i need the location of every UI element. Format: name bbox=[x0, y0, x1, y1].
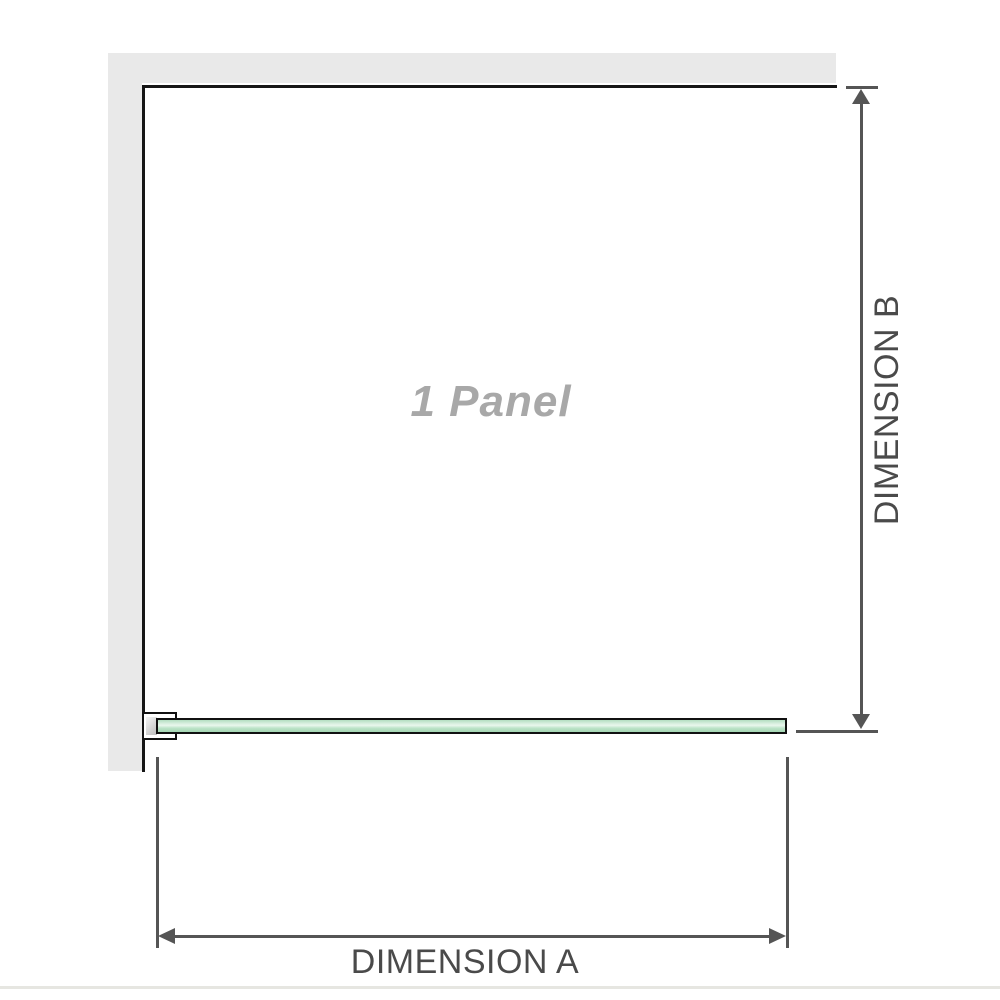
arrow-left-icon bbox=[158, 928, 175, 944]
glass-panel-bar bbox=[156, 718, 787, 734]
dimension-b-tick-bottom bbox=[796, 730, 878, 733]
panel-area: 1 Panel bbox=[145, 88, 837, 716]
dimension-b-line bbox=[860, 95, 863, 723]
page-baseline-divider bbox=[0, 986, 1000, 989]
dimension-a-line bbox=[172, 935, 772, 938]
arrow-down-icon bbox=[852, 714, 870, 729]
panel-count-label: 1 Panel bbox=[410, 377, 571, 427]
dimension-b-label: DIMENSION B bbox=[870, 290, 904, 530]
dimension-a-extension-right bbox=[786, 757, 789, 948]
arrow-right-icon bbox=[769, 928, 786, 944]
dimension-a-label: DIMENSION A bbox=[265, 945, 665, 979]
wall-left-bar bbox=[108, 53, 142, 771]
wall-top-bar bbox=[108, 53, 836, 83]
arrow-up-icon bbox=[852, 89, 870, 104]
dimension-a-extension-left bbox=[156, 757, 159, 948]
panel-dimension-diagram: 1 Panel DIMENSION B DIMENSION A bbox=[0, 0, 1000, 1000]
